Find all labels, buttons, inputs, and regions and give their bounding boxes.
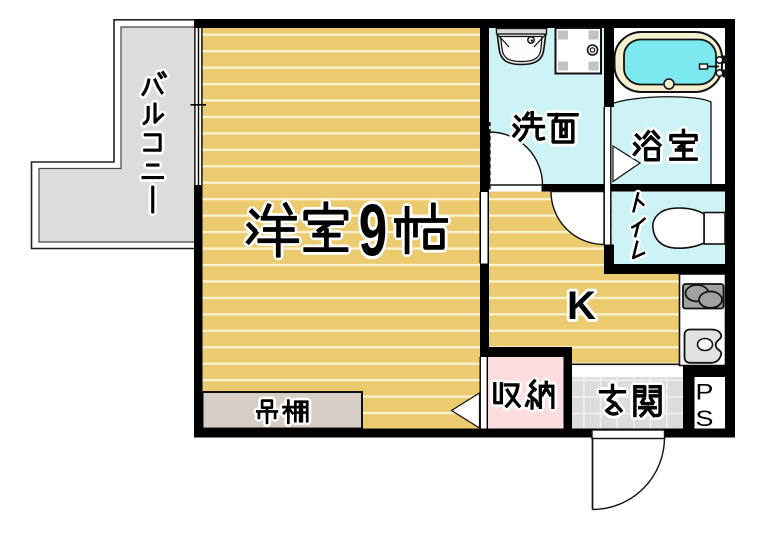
svg-text:K: K [567, 284, 596, 328]
svg-text:P: P [696, 381, 714, 405]
svg-text:9: 9 [359, 191, 387, 272]
svg-text:S: S [696, 407, 714, 431]
